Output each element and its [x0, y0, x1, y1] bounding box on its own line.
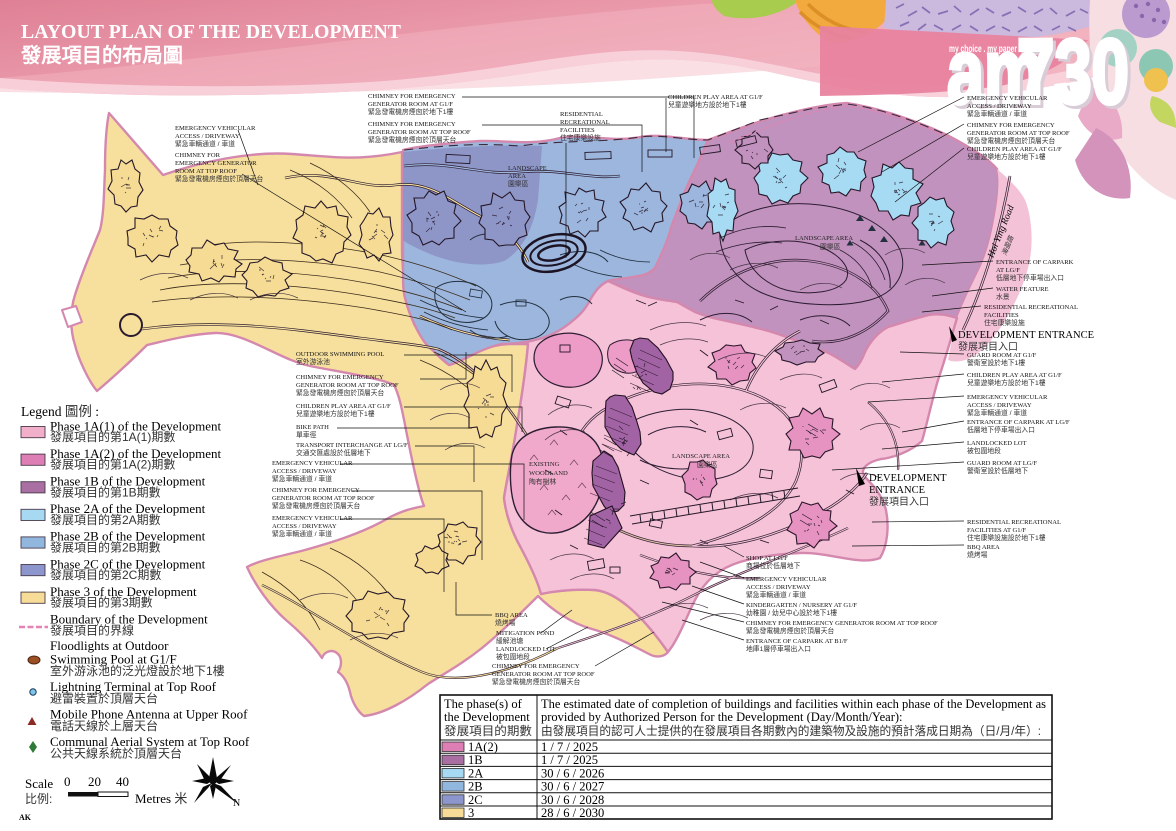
svg-text:AT LG/F: AT LG/F [996, 267, 1020, 274]
svg-text:GENERATOR ROOM AT TOP ROOF: GENERATOR ROOM AT TOP ROOF [368, 129, 471, 136]
svg-text:RESIDENTIAL: RESIDENTIAL [560, 111, 603, 118]
svg-text:30 / 6 / 2026: 30 / 6 / 2026 [541, 766, 604, 780]
svg-text:CHIMNEY FOR EMERGENCY: CHIMNEY FOR EMERGENCY [296, 374, 384, 381]
svg-text:GENERATOR ROOM AT G1/F: GENERATOR ROOM AT G1/F [368, 101, 453, 108]
svg-text:緊急車輛通道 / 車道: 緊急車輛通道 / 車道 [967, 109, 1027, 118]
svg-text:BBQ AREA: BBQ AREA [967, 544, 1000, 551]
svg-text:緊急發電機房煙囪於地下1樓: 緊急發電機房煙囪於地下1樓 [368, 107, 454, 116]
svg-text:緊急發電機房煙囪於頂層天台: 緊急發電機房煙囪於頂層天台 [368, 135, 457, 144]
svg-text:GENERATOR ROOM AT TOP ROOF: GENERATOR ROOM AT TOP ROOF [492, 671, 595, 678]
svg-text:provided by Authorized Person: provided by Authorized Person for the De… [541, 710, 903, 724]
svg-text:40: 40 [116, 774, 129, 789]
svg-text:CHIMNEY FOR EMERGENCY: CHIMNEY FOR EMERGENCY [368, 121, 456, 128]
svg-text:室外游泳池: 室外游泳池 [296, 357, 330, 366]
svg-text:TRANSPORT INTERCHANGE AT LG/F: TRANSPORT INTERCHANGE AT LG/F [296, 442, 408, 449]
svg-text:GENERATOR ROOM AT TOP ROOF: GENERATOR ROOM AT TOP ROOF [296, 382, 399, 389]
svg-text:園樂區: 園樂區 [820, 242, 841, 251]
svg-text:住宅康樂設施設於地下1樓: 住宅康樂設施設於地下1樓 [967, 533, 1046, 542]
svg-text:RESIDENTIAL RECREATIONAL: RESIDENTIAL RECREATIONAL [984, 304, 1078, 311]
svg-text:園樂區: 園樂區 [697, 460, 718, 469]
svg-text:緊急發電機房煙囪於頂層天台: 緊急發電機房煙囪於頂層天台 [967, 136, 1056, 145]
svg-text:由發展項目的認可人士提供的在發展項目各期數內的建築物及設施的: 由發展項目的認可人士提供的在發展項目各期數內的建築物及設施的預計落成日期為（日/… [541, 723, 1041, 738]
svg-text:兒童遊樂地方設於地下1樓: 兒童遊樂地方設於地下1樓 [967, 378, 1046, 387]
svg-text:水景: 水景 [996, 292, 1010, 301]
svg-text:比例:: 比例: [25, 792, 52, 806]
svg-text:The phase(s) of: The phase(s) of [444, 697, 523, 711]
svg-text:LANDSCAPE AREA: LANDSCAPE AREA [795, 235, 853, 242]
svg-text:N: N [233, 798, 240, 809]
svg-text:低層地下停車場出入口: 低層地下停車場出入口 [967, 425, 1035, 434]
svg-text:MITIGATION POND: MITIGATION POND [496, 630, 555, 637]
svg-text:EXISTING: EXISTING [529, 461, 560, 468]
svg-text:3: 3 [468, 806, 474, 820]
svg-text:KINDERGARTEN / NURSERY AT G1/F: KINDERGARTEN / NURSERY AT G1/F [746, 602, 857, 609]
svg-text:緊急發電機房煙囪於頂層天台: 緊急發電機房煙囪於頂層天台 [272, 501, 361, 510]
svg-text:發展項目的第1B期數: 發展項目的第1B期數 [50, 484, 161, 499]
svg-text:ACCESS / DRIVEWAY: ACCESS / DRIVEWAY [746, 584, 811, 591]
svg-text:緩解池塘: 緩解池塘 [496, 636, 523, 645]
svg-text:FACILITIES: FACILITIES [984, 312, 1019, 319]
svg-text:The estimated date of completi: The estimated date of completion of buil… [541, 697, 1046, 711]
svg-text:2B: 2B [468, 780, 483, 794]
svg-text:電話天線於上層天台: 電話天線於上層天台 [50, 718, 158, 733]
svg-text:EMERGENCY VEHICULAR: EMERGENCY VEHICULAR [967, 95, 1048, 102]
svg-text:ENTRANCE: ENTRANCE [869, 485, 925, 496]
svg-text:GUARD ROOM AT LG/F: GUARD ROOM AT LG/F [967, 460, 1037, 467]
svg-text:RESIDENTIAL RECREATIONAL: RESIDENTIAL RECREATIONAL [967, 519, 1061, 526]
svg-text:CHIMNEY FOR EMERGENCY: CHIMNEY FOR EMERGENCY [967, 122, 1055, 129]
svg-text:ACCESS / DRIVEWAY: ACCESS / DRIVEWAY [967, 402, 1032, 409]
svg-text:CHILDREN PLAY AREA AT G1/F: CHILDREN PLAY AREA AT G1/F [668, 94, 763, 101]
svg-text:避雷裝置於頂層天台: 避雷裝置於頂層天台 [50, 691, 158, 706]
svg-text:WOODLAND: WOODLAND [529, 470, 568, 477]
svg-text:LANDSCAPE: LANDSCAPE [508, 165, 547, 172]
svg-text:30 / 6 / 2027: 30 / 6 / 2027 [541, 780, 604, 794]
svg-text:DEVELOPMENT: DEVELOPMENT [869, 473, 947, 484]
svg-text:28 / 6 / 2030: 28 / 6 / 2030 [541, 806, 604, 820]
svg-text:兒童遊樂地方設於地下1樓: 兒童遊樂地方設於地下1樓 [967, 152, 1046, 161]
svg-text:兒童遊樂地方設於地下1樓: 兒童遊樂地方設於地下1樓 [296, 409, 375, 418]
svg-text:緊急發電機房煙囪於頂層天台: 緊急發電機房煙囪於頂層天台 [175, 174, 264, 183]
svg-text:幼稚園 / 幼兒中心設於地下1樓: 幼稚園 / 幼兒中心設於地下1樓 [746, 608, 837, 617]
svg-text:發展項目的期數: 發展項目的期數 [444, 723, 532, 738]
svg-text:GENERATOR ROOM AT TOP ROOF: GENERATOR ROOM AT TOP ROOF [272, 495, 375, 502]
svg-text:1 / 7 / 2025: 1 / 7 / 2025 [541, 753, 598, 767]
svg-text:住宅康樂設施: 住宅康樂設施 [560, 133, 601, 142]
svg-text:被包圍地段: 被包圍地段 [496, 652, 530, 661]
svg-text:GENERATOR ROOM AT TOP ROOF: GENERATOR ROOM AT TOP ROOF [967, 130, 1070, 137]
svg-text:發展項目入口: 發展項目入口 [869, 495, 929, 508]
svg-text:ENTRANCE OF CARPARK AT B1/F: ENTRANCE OF CARPARK AT B1/F [746, 638, 848, 645]
svg-text:商場位於低層地下: 商場位於低層地下 [746, 561, 801, 570]
svg-text:ENTRANCE OF CARPARK: ENTRANCE OF CARPARK [996, 259, 1074, 266]
svg-text:EMERGENCY VEHICULAR: EMERGENCY VEHICULAR [967, 394, 1048, 401]
svg-text:ACCESS / DRIVEWAY: ACCESS / DRIVEWAY [967, 103, 1032, 110]
svg-text:CHIMNEY FOR: CHIMNEY FOR [175, 152, 221, 159]
svg-text:燒烤場: 燒烤場 [967, 550, 988, 559]
svg-text:2C: 2C [468, 793, 483, 807]
svg-text:DEVELOPMENT ENTRANCE: DEVELOPMENT ENTRANCE [958, 330, 1094, 341]
svg-text:CHIMNEY FOR EMERGENCY: CHIMNEY FOR EMERGENCY [368, 93, 456, 100]
svg-text:FACILITIES AT G1/F: FACILITIES AT G1/F [967, 527, 1026, 534]
svg-text:住宅康樂設施: 住宅康樂設施 [984, 318, 1025, 327]
svg-text:ACCESS / DRIVEWAY: ACCESS / DRIVEWAY [272, 523, 337, 530]
svg-text:CHILDREN PLAY AREA AT G1/F: CHILDREN PLAY AREA AT G1/F [967, 146, 1062, 153]
svg-text:發展項目的第2C期數: 發展項目的第2C期數 [50, 567, 161, 582]
svg-text:緊急發電機房煙囪於頂層天台: 緊急發電機房煙囪於頂層天台 [296, 388, 385, 397]
svg-text:AREA: AREA [508, 173, 526, 180]
svg-text:緊急車輛通道 / 車道: 緊急車輛通道 / 車道 [272, 529, 332, 538]
svg-text:緊急車輛通道 / 車道: 緊急車輛通道 / 車道 [175, 139, 235, 148]
svg-text:單車徑: 單車徑 [296, 430, 317, 439]
svg-text:1B: 1B [468, 753, 483, 767]
svg-text:EMERGENCY VEHICULAR: EMERGENCY VEHICULAR [175, 125, 256, 132]
svg-text:公共天線系統於頂層天台: 公共天線系統於頂層天台 [50, 746, 182, 761]
svg-text:CHILDREN PLAY AREA AT G1/F: CHILDREN PLAY AREA AT G1/F [967, 372, 1062, 379]
svg-text:BBQ AREA: BBQ AREA [495, 612, 528, 619]
svg-text:緊急發電機房煙囪於頂層天台: 緊急發電機房煙囪於頂層天台 [492, 677, 581, 686]
svg-text:FACILITIES: FACILITIES [560, 127, 595, 134]
svg-text:地庫1層停車場出入口: 地庫1層停車場出入口 [746, 644, 811, 653]
svg-text:RECREATIONAL: RECREATIONAL [560, 119, 610, 126]
svg-text:陶有樹林: 陶有樹林 [529, 477, 556, 486]
svg-text:1A(2): 1A(2) [468, 740, 498, 754]
svg-text:Metres 米: Metres 米 [135, 791, 187, 806]
svg-text:OUTDOOR SWIMMING POOL: OUTDOOR SWIMMING POOL [296, 351, 384, 358]
svg-text:20: 20 [88, 774, 101, 789]
svg-text:緊急車輛通道 / 車道: 緊急車輛通道 / 車道 [967, 408, 1027, 417]
svg-text:CHIMNEY FOR EMERGENCY GENERATO: CHIMNEY FOR EMERGENCY GENERATOR ROOM AT … [746, 620, 938, 627]
svg-text:警衛室設於低層地下: 警衛室設於低層地下 [967, 466, 1028, 475]
svg-text:EMERGENCY VEHICULAR: EMERGENCY VEHICULAR [272, 515, 353, 522]
svg-text:LANDLOCKED LOT: LANDLOCKED LOT [967, 440, 1027, 447]
svg-text:發展項目的界線: 發展項目的界線 [50, 622, 134, 637]
svg-text:EMERGENCY GENERATOR: EMERGENCY GENERATOR [175, 160, 257, 167]
svg-text:ENTRANCE OF CARPARK AT LG/F: ENTRANCE OF CARPARK AT LG/F [967, 419, 1070, 426]
svg-text:CHILDREN PLAY AREA AT G1/F: CHILDREN PLAY AREA AT G1/F [296, 403, 391, 410]
svg-text:BIKE PATH: BIKE PATH [296, 424, 329, 431]
svg-text:緊急車輛通道 / 車道: 緊急車輛通道 / 車道 [272, 474, 332, 483]
svg-text:發展項目的第2A期數: 發展項目的第2A期數 [50, 512, 161, 527]
svg-text:室外游泳池的泛光燈設於地下1樓: 室外游泳池的泛光燈設於地下1樓 [50, 663, 225, 678]
svg-text:GUARD ROOM AT G1/F: GUARD ROOM AT G1/F [967, 352, 1037, 359]
svg-text:1 / 7 / 2025: 1 / 7 / 2025 [541, 740, 598, 754]
svg-text:園樂區: 園樂區 [508, 179, 529, 188]
svg-text:緊急車輛通道 / 車道: 緊急車輛通道 / 車道 [746, 590, 806, 599]
svg-text:發展項目的第2B期數: 發展項目的第2B期數 [50, 540, 161, 555]
svg-text:燒烤場: 燒烤場 [495, 618, 516, 627]
svg-text:LANDLOCKED LOT: LANDLOCKED LOT [496, 646, 556, 653]
svg-text:EMERGENCY VEHICULAR: EMERGENCY VEHICULAR [746, 576, 827, 583]
svg-text:2A: 2A [468, 766, 483, 780]
svg-text:AK: AK [19, 813, 32, 822]
svg-text:LANDSCAPE AREA: LANDSCAPE AREA [672, 453, 730, 460]
svg-text:低層地下停車場出入口: 低層地下停車場出入口 [996, 273, 1064, 282]
svg-text:ACCESS / DRIVEWAY: ACCESS / DRIVEWAY [272, 468, 337, 475]
svg-text:30 / 6 / 2028: 30 / 6 / 2028 [541, 793, 604, 807]
svg-text:發展項目入口: 發展項目入口 [958, 340, 1018, 353]
svg-text:發展項目的第3期數: 發展項目的第3期數 [50, 595, 153, 610]
svg-text:發展項目的第1A(1)期數: 發展項目的第1A(1)期數 [50, 429, 175, 444]
svg-text:緊急發電機房煙囪於頂層天台: 緊急發電機房煙囪於頂層天台 [746, 626, 835, 635]
svg-text:發展項目的第1A(2)期數: 發展項目的第1A(2)期數 [50, 457, 175, 472]
svg-text:SHOP AT LG/F: SHOP AT LG/F [746, 555, 788, 562]
svg-text:ROOM AT TOP ROOF: ROOM AT TOP ROOF [175, 168, 237, 175]
svg-text:被包圍地段: 被包圍地段 [967, 446, 1001, 455]
svg-text:0: 0 [64, 774, 71, 789]
svg-text:ACCESS / DRIVEWAY: ACCESS / DRIVEWAY [175, 133, 240, 140]
svg-text:Scale: Scale [25, 776, 53, 791]
svg-text:交通交匯處設於低層地下: 交通交匯處設於低層地下 [296, 448, 371, 457]
svg-text:CHIMNEY FOR EMERGENCY: CHIMNEY FOR EMERGENCY [272, 487, 360, 494]
svg-text:the Development: the Development [444, 710, 530, 724]
svg-text:CHIMNEY FOR EMERGENCY: CHIMNEY FOR EMERGENCY [492, 663, 580, 670]
svg-text:EMERGENCY VEHICULAR: EMERGENCY VEHICULAR [272, 460, 353, 467]
svg-text:警衛室設於地下1樓: 警衛室設於地下1樓 [967, 358, 1025, 367]
svg-text:WATER FEATURE: WATER FEATURE [996, 286, 1049, 293]
svg-text:兒童遊樂地方設於地下1樓: 兒童遊樂地方設於地下1樓 [668, 100, 747, 109]
svg-text:Legend 圖例 :: Legend 圖例 : [21, 404, 99, 419]
